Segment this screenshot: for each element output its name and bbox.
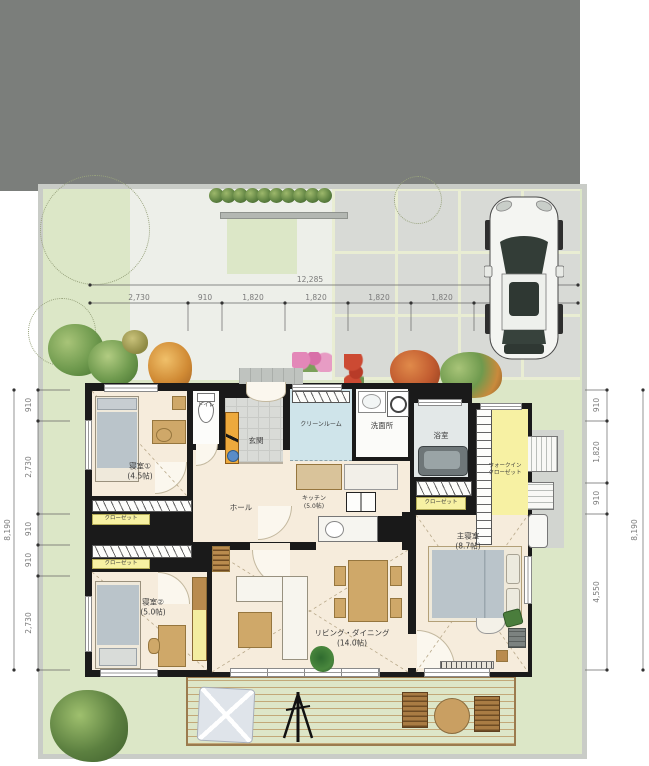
bedroom1-label: 寝室① (4.5帖) [127,461,152,481]
desk [508,628,526,648]
closet-master-doors [416,481,472,496]
window [104,384,158,392]
kitchen-cupboard [296,464,342,490]
window [292,384,342,391]
shade-sail [197,687,256,744]
bed-mattress [97,412,137,468]
basin-icon [362,394,381,409]
window [100,669,158,677]
dim-left-seg: 2,730 [24,612,33,634]
coffee-table [238,612,272,648]
dim-left-seg: 2,730 [24,456,33,478]
kitchen-counter [344,464,398,490]
door-opening [250,543,290,550]
car-icon [484,192,564,364]
dim-left-seg: 910 [24,522,33,537]
closet-bedroom2-label: クローゼット [104,560,137,567]
door-opening [408,634,416,668]
window [424,668,490,677]
tripod-icon [278,688,318,746]
dim-right-seg: 1,820 [592,441,601,463]
dim-left-seg: 910 [24,553,33,568]
master-label: 主寝室 (8.7帖) [455,531,480,551]
window [480,403,522,410]
pillow [506,554,520,584]
closet-master-label: クローゼット [424,499,457,506]
tree-icon [122,330,148,354]
kitchen-label: キッチン (5.0帖) [302,495,326,511]
door-swing-arc [246,382,286,402]
bathtub-inner [424,451,460,469]
toilet-label: トイレ [198,402,215,409]
kitchen-sink-icon [325,521,344,538]
deck-chair [402,692,428,728]
wall-cabinet [346,492,376,512]
dim-right-overall: 8,190 [630,519,639,541]
road-block [0,0,580,191]
canopy-outline [40,175,150,285]
window [418,399,462,406]
sliding-door [230,668,380,677]
dim-right-seg: 4,550 [592,581,601,603]
lawn-patch [227,216,297,274]
window [85,420,92,470]
washing-machine-drum [390,396,407,413]
deck-chair [474,696,500,732]
washroom-label: 洗面所 [371,421,394,431]
chair [148,638,160,654]
tall-cabinet [192,577,207,661]
room-hall [193,450,292,550]
water-heater [528,514,548,548]
dim-right-seg: 910 [592,491,601,506]
dim-right-seg: 910 [592,398,601,413]
dining-chair [390,566,402,586]
bed-mattress [432,550,504,618]
dining-chair [390,598,402,618]
vent-strip [440,661,494,669]
ac-outdoor-unit [524,482,554,510]
closet-bedroom1-label: クローゼット [104,515,137,522]
closet-bedroom1-doors [92,500,192,512]
floor-plan: 12,285 2,730 910 1,820 1,820 1,820 1,820… [0,0,649,766]
garden-wall [220,212,348,219]
window [524,556,532,604]
dim-left-overall: 8,190 [3,519,12,541]
bedroom2-label: 寝室② (5.0帖) [140,597,165,617]
bed-headboard [97,398,137,410]
living-label: リビング・ダイニング (14.0帖) [315,628,390,648]
desk [158,625,186,667]
storage-box [496,650,508,662]
houseplant-icon [310,646,334,672]
cleanroom-hanger-rail [292,391,350,403]
dining-chair [334,598,346,618]
counter-end [402,512,410,550]
hedge-row [209,188,329,210]
canopy-outline [394,176,442,224]
bathroom-label: 浴室 [434,431,449,441]
cleanroom-label: クリーンルーム [300,421,342,429]
deck-table [434,698,470,734]
closet-bedroom2-doors [92,545,192,558]
chair [156,428,172,442]
sofa-chaise [282,576,308,660]
dining-chair [334,566,346,586]
dim-left-seg: 910 [24,398,33,413]
hall-label: ホール [230,503,253,513]
entrance-label: 玄関 [249,436,264,446]
bed-mattress [97,585,139,645]
ladder [212,546,230,572]
hand-basin-icon [227,450,239,462]
dining-table [348,560,388,622]
bed-foot [99,648,137,666]
window [85,596,92,652]
shelf [172,396,186,410]
wic-label: ウォークイン クローゼット [488,463,521,477]
hedge-bush-icon [317,188,332,203]
